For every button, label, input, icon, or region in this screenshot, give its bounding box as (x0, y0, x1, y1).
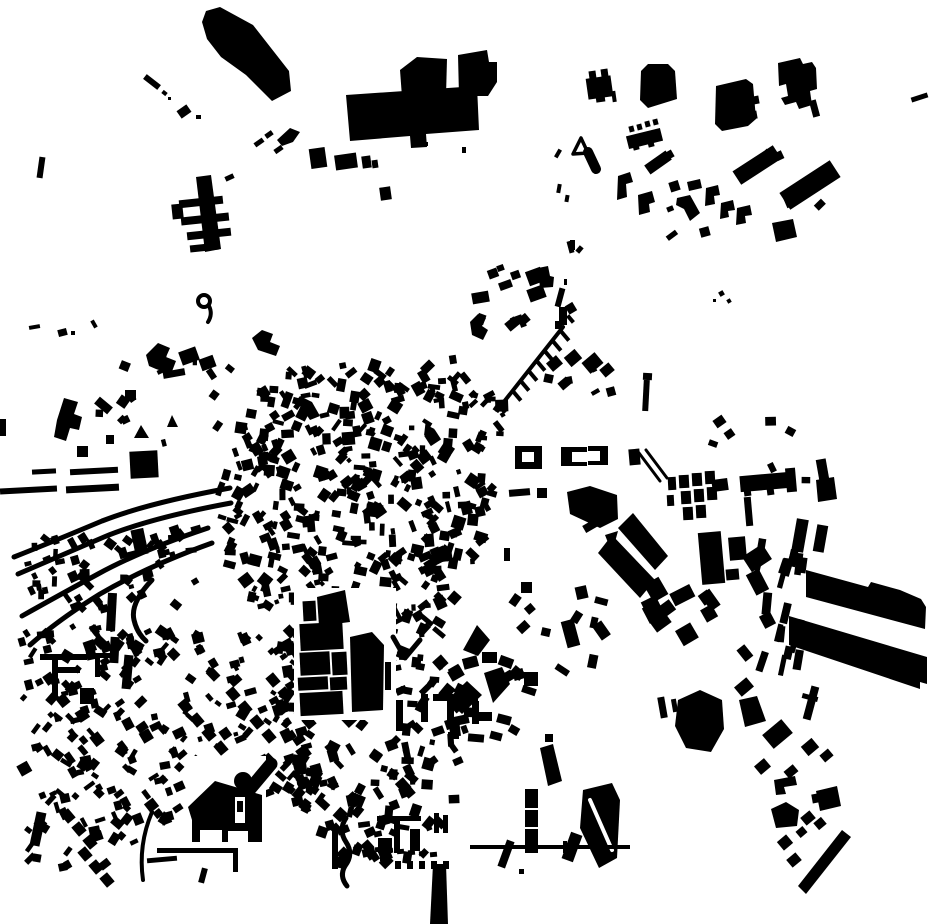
map-canvas (0, 0, 930, 924)
major-buildings-layer (0, 7, 928, 924)
figure-ground-map (0, 0, 930, 924)
